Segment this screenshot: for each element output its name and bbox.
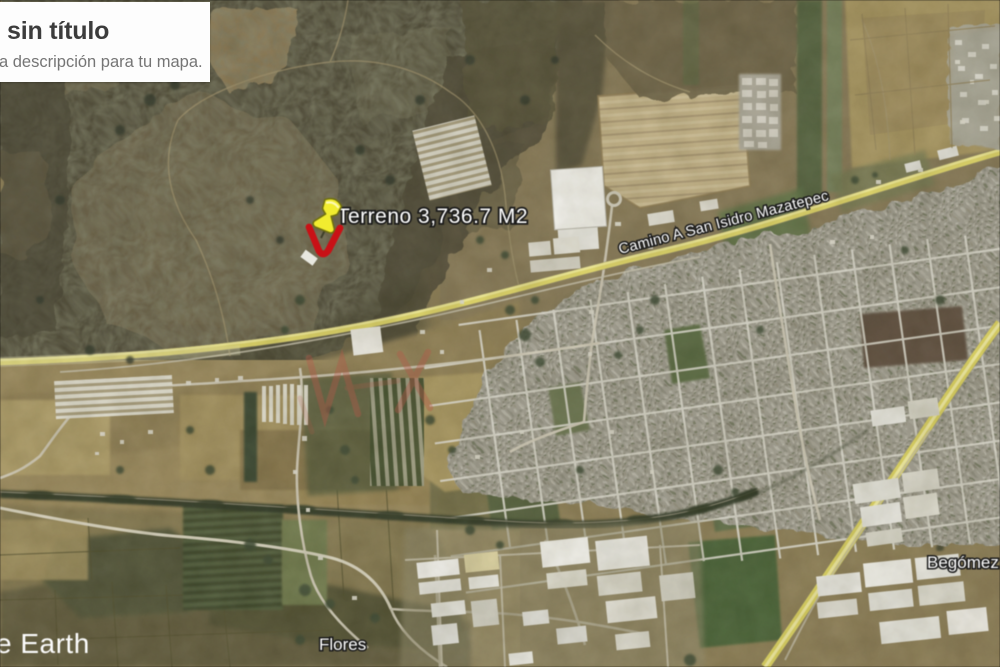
- svg-text:Begómez: Begómez: [927, 553, 999, 572]
- svg-text:e Earth: e Earth: [0, 628, 90, 659]
- svg-text:Flores: Flores: [319, 635, 366, 654]
- svg-text:Terreno 3,736.7 M2: Terreno 3,736.7 M2: [337, 205, 528, 228]
